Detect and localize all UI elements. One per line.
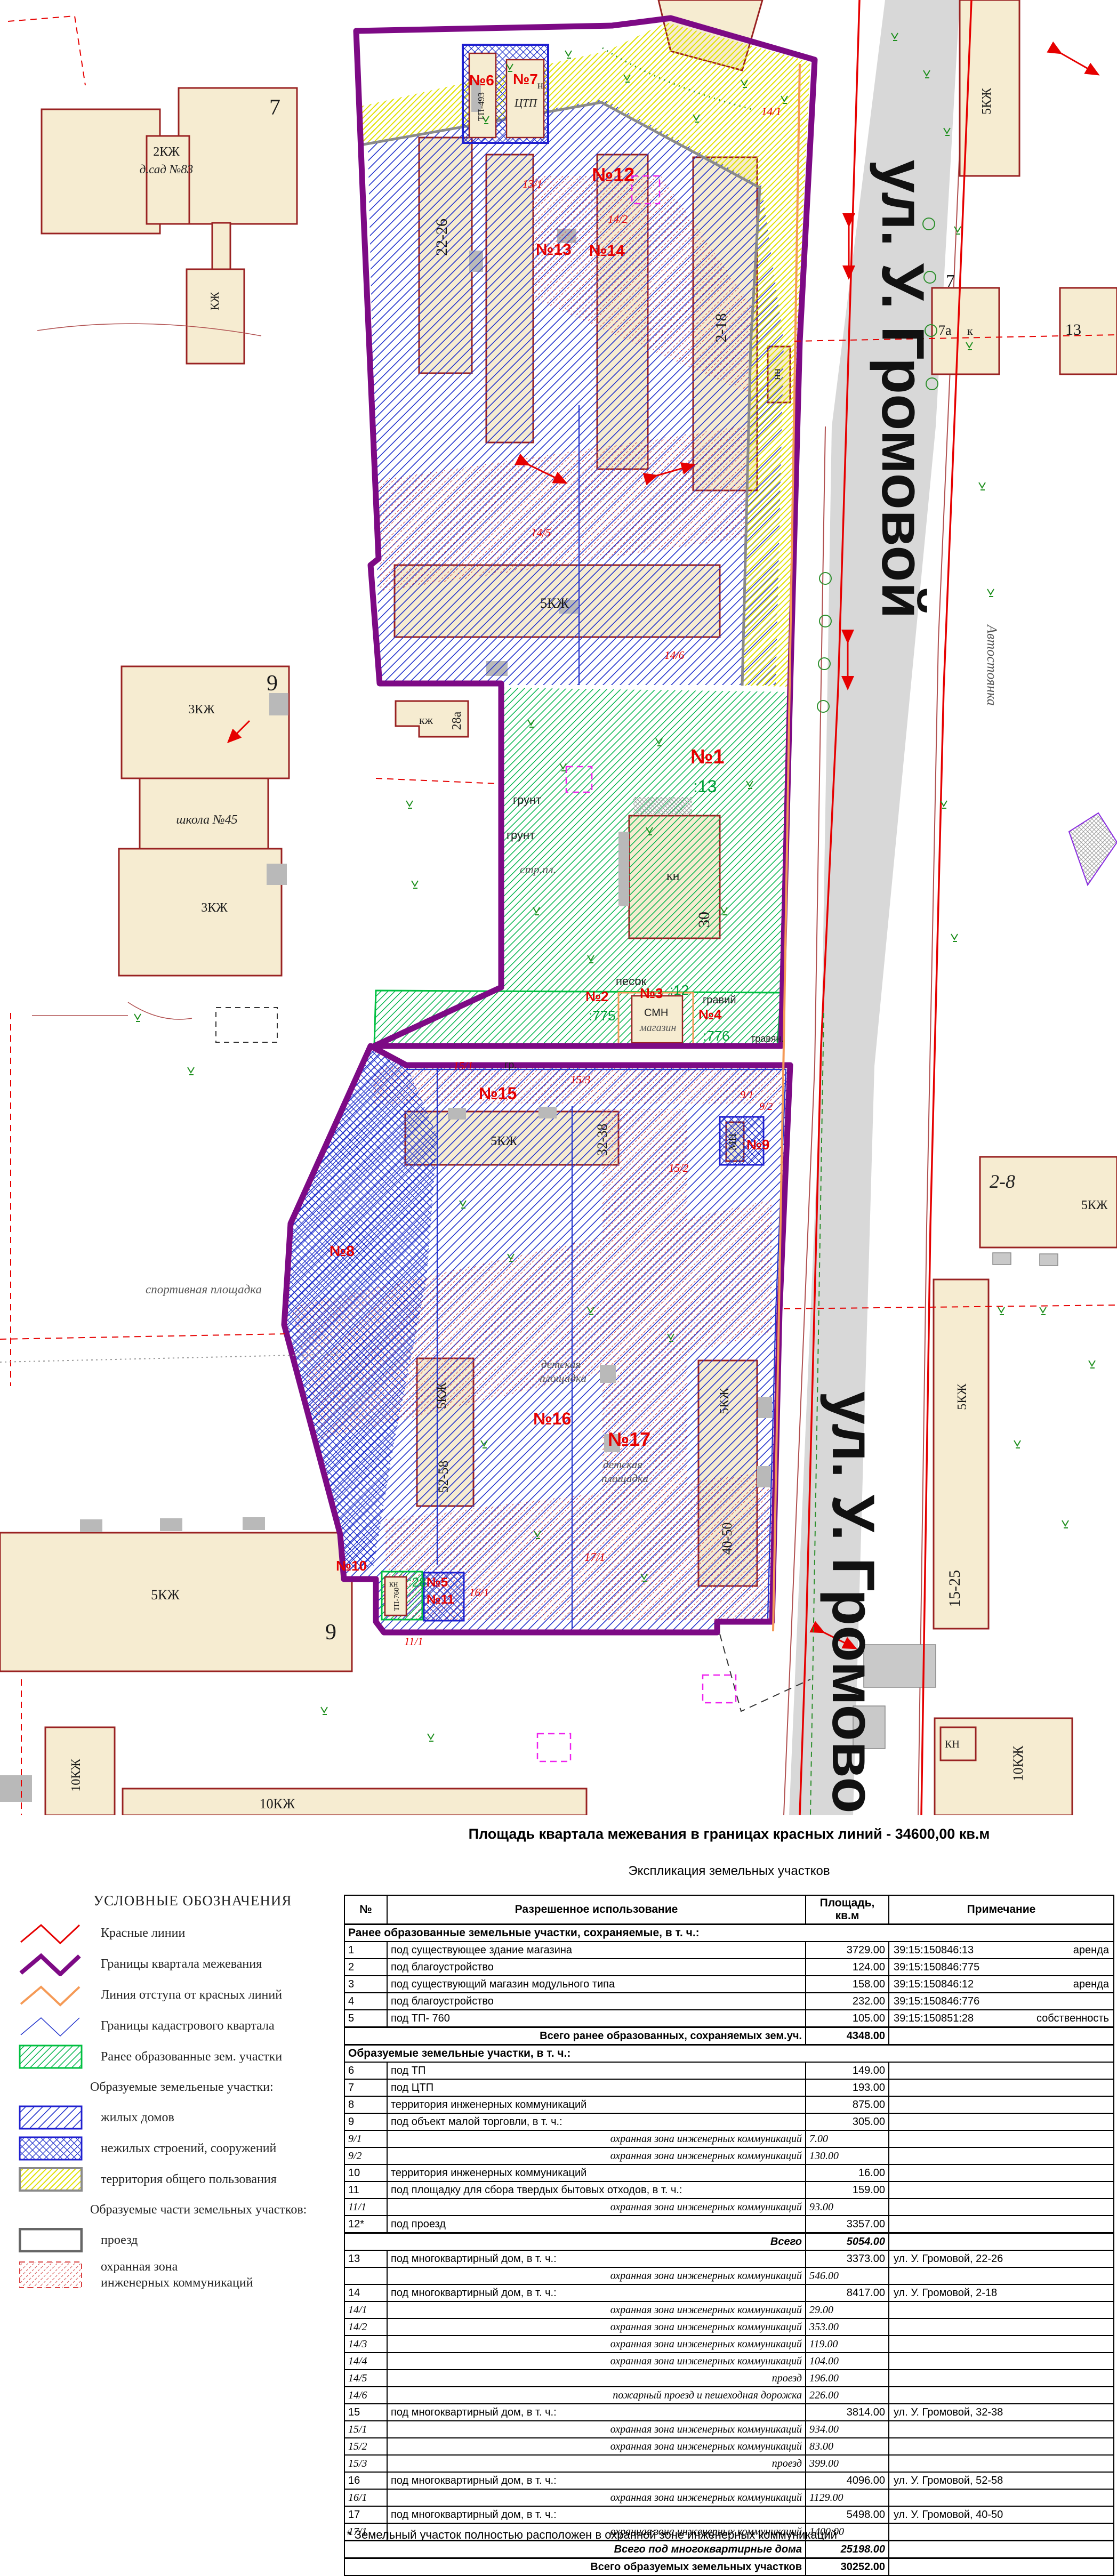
cell-notewrap	[889, 2301, 1114, 2319]
table-row: 14под многоквартирный дом, в т. ч.:8417.…	[344, 2284, 1114, 2301]
blue-crosshatch-icon	[19, 2136, 83, 2161]
table-row: 14/5проезд196.00	[344, 2370, 1114, 2387]
cell-notewrap: ул. У. Громовой, 2-18	[889, 2284, 1114, 2301]
cell-notewrap	[889, 2455, 1114, 2472]
sub-13-1: 13/1	[523, 178, 542, 190]
cell-notewrap	[889, 2336, 1114, 2353]
legend-item-red-lines: Красные линии	[19, 1921, 347, 1945]
cell-area: 5498.00	[806, 2506, 889, 2523]
legend-item-setback: Линия отступа от красных линий	[19, 1983, 347, 2007]
note-content: 39:15:150846:776	[889, 1994, 1113, 2009]
yellow-hatch-icon	[19, 2167, 83, 2192]
white-rect-icon	[19, 2228, 83, 2252]
cell-use: под ТП	[387, 2062, 806, 2079]
bld-7a: 7а	[938, 323, 952, 338]
cell-use: охранная зона инженерных коммуникаций	[387, 2319, 806, 2336]
bld-5kzh-3238: 5КЖ	[491, 1134, 517, 1148]
note-content	[889, 2189, 1113, 2191]
table-row: 4под благоустройство232.0039:15:150846:7…	[344, 1993, 1114, 2010]
table-row: 14/2охранная зона инженерных коммуникаци…	[344, 2319, 1114, 2336]
det2b: площадка	[601, 1472, 648, 1485]
cell-num: 5	[344, 2010, 387, 2027]
cell-area: 25198.00	[806, 2541, 889, 2558]
sub-14-1: 14/1	[761, 105, 781, 118]
bld-10kzh-se: 10КЖ	[1010, 1745, 1026, 1781]
cell-use: охранная зона инженерных коммуникаций	[387, 2438, 806, 2455]
cell-area: 4096.00	[806, 2472, 889, 2489]
table-row: 15/1охранная зона инженерных коммуникаци…	[344, 2421, 1114, 2438]
cell-notewrap	[889, 2233, 1114, 2251]
parcel-9-label: №9	[746, 1137, 769, 1153]
cell-num: 16/1	[344, 2489, 387, 2506]
cell-use2: Всего ранее образованных, сохраняемых зе…	[344, 2027, 806, 2045]
cell-notewrap	[889, 2267, 1114, 2284]
bld-mn: МН	[727, 1133, 738, 1150]
cad-12: :12	[670, 982, 689, 998]
cell-sec: Ранее образованные земельные участки, со…	[344, 1925, 1114, 1942]
legend-header-formed: Образуемые земельеные участки:	[19, 2075, 347, 2099]
cell-notewrap	[889, 2113, 1114, 2130]
grunt-2: грунт	[507, 828, 535, 842]
sub-14-6: 14/6	[664, 649, 685, 662]
cell-notewrap	[889, 2523, 1114, 2541]
cell-use: под площадку для сбора твердых бытовых о…	[387, 2181, 806, 2199]
cell-notewrap: 39:15:150846:775	[889, 1959, 1114, 1976]
table-row: Всего5054.00	[344, 2233, 1114, 2251]
table-row: 14/4охранная зона инженерных коммуникаци…	[344, 2353, 1114, 2370]
bld-5kzh-5258: 5КЖ	[435, 1382, 449, 1409]
cell-area: 119.00	[806, 2336, 889, 2353]
cell-num: 12*	[344, 2216, 387, 2233]
cell-area: 93.00	[806, 2199, 889, 2216]
note-content	[889, 2377, 1113, 2379]
cell-area: 105.00	[806, 2010, 889, 2027]
note-content	[889, 2462, 1113, 2465]
cell-num: 15	[344, 2404, 387, 2421]
legend-label: Границы квартала межевания	[101, 1956, 262, 1972]
note-content	[889, 2531, 1113, 2533]
cell-num: 9/2	[344, 2147, 387, 2164]
table-row: охранная зона инженерных коммуникаций546…	[344, 2267, 1114, 2284]
cell-num: 14/6	[344, 2387, 387, 2404]
cell-num: 4	[344, 1993, 387, 2010]
parcel-12-label: №12	[592, 164, 634, 186]
table-row: 7под ЦТП193.00	[344, 2079, 1114, 2096]
note-content	[889, 2326, 1113, 2328]
gr-label: гр.	[504, 1059, 517, 1071]
legend-label: Красные линии	[101, 1925, 185, 1941]
magazin-label: магазин	[639, 1022, 676, 1034]
note-content	[889, 2104, 1113, 2106]
col-num: №	[344, 1895, 387, 1925]
bld-22-26: 22-26	[433, 219, 451, 256]
cell-notewrap	[889, 2199, 1114, 2216]
legend-label: территория общего пользования	[101, 2171, 277, 2187]
cell-num: 1	[344, 1942, 387, 1959]
note-content	[889, 2206, 1113, 2208]
cell-notewrap	[889, 2147, 1114, 2164]
blue-hatch-icon	[19, 2105, 83, 2130]
cell-area: 226.00	[806, 2387, 889, 2404]
legend-item-nonresidential: нежилых строений, сооружений	[19, 2136, 347, 2161]
note-content: ул. У. Громовой, 2-18	[889, 2286, 1113, 2300]
travyan-label: травян.	[751, 1033, 784, 1044]
bld-k: к	[967, 324, 973, 337]
cell-num: 14/4	[344, 2353, 387, 2370]
cell-use: охранная зона инженерных коммуникаций	[387, 2353, 806, 2370]
det2a: площадка	[540, 1372, 586, 1384]
cell-area: 3814.00	[806, 2404, 889, 2421]
bld-kn-30: кн	[666, 869, 680, 883]
sub-16-1: 16/1	[469, 1586, 489, 1599]
explication-subtitle: Экспликация земельных участков	[344, 1864, 1114, 1879]
parcel-14-label: №14	[589, 242, 625, 260]
cell-use: охранная зона инженерных коммуникаций	[387, 2301, 806, 2319]
legend-label: Ранее образованные зем. участки	[101, 2049, 282, 2065]
bld-28a: 28а	[450, 711, 464, 730]
legend-label: Образуемые земельеные участки:	[90, 2079, 274, 2095]
cell-num: 7	[344, 2079, 387, 2096]
cell-notewrap	[889, 2096, 1114, 2113]
note-content	[889, 2343, 1113, 2345]
bld-13: 13	[1065, 321, 1081, 339]
green-hatch-icon	[19, 2044, 83, 2069]
cell-area: 30252.00	[806, 2558, 889, 2576]
table-row: 15/3проезд399.00	[344, 2455, 1114, 2472]
cell-notewrap	[889, 2216, 1114, 2233]
block7-label: 7	[269, 95, 280, 120]
cell-notewrap	[889, 2387, 1114, 2404]
bld-2-18: 2-18	[712, 313, 730, 343]
parcel-7-label: №7	[513, 71, 538, 87]
parcel-11-label: №11	[427, 1592, 454, 1607]
cell-use: территория инженерных коммуникаций	[387, 2164, 806, 2181]
parcel-16-label: №16	[533, 1409, 571, 1428]
graviy-label: гравий	[703, 994, 736, 1006]
red-hatch-icon	[19, 2261, 83, 2289]
table-row: 14/6пожарный проезд и пешеходная дорожка…	[344, 2387, 1114, 2404]
note-content: ул. У. Громовой, 40-50	[889, 2508, 1113, 2522]
col-area: Площадь, кв.м	[806, 1895, 889, 1925]
cell-area: 16.00	[806, 2164, 889, 2181]
cell-notewrap	[889, 2027, 1114, 2045]
table-row: 9под объект малой торговли, в т. ч.:305.…	[344, 2113, 1114, 2130]
parcel-4-label: №4	[698, 1007, 722, 1023]
table-row: 5под ТП- 760105.0039:15:150851:28собстве…	[344, 2010, 1114, 2027]
table-row: 10территория инженерных коммуникаций16.0…	[344, 2164, 1114, 2181]
cad-775: :775	[589, 1008, 616, 1024]
cell-num: 6	[344, 2062, 387, 2079]
cell-num: 14/5	[344, 2370, 387, 2387]
note-content	[889, 2087, 1113, 2089]
lower-quarter	[284, 1046, 790, 1632]
parcel-2-label: №2	[585, 988, 608, 1004]
table-row: 11/1охранная зона инженерных коммуникаци…	[344, 2199, 1114, 2216]
col-use: Разрешенное использование	[387, 1895, 806, 1925]
cell-num: 15/3	[344, 2455, 387, 2472]
sub-11-1: 11/1	[404, 1635, 423, 1648]
cell-use: охранная зона инженерных коммуникаций	[387, 2147, 806, 2164]
cell-notewrap	[889, 2541, 1114, 2558]
cell-use: охранная зона инженерных коммуникаций	[387, 2421, 806, 2438]
bld-kn-tp: кн	[389, 1580, 398, 1589]
table-row: 16/1охранная зона инженерных коммуникаци…	[344, 2489, 1114, 2506]
cell-use2: Всего образуемых земельных участков	[344, 2558, 806, 2576]
cell-num: 14/1	[344, 2301, 387, 2319]
page: { "map": { "labels": { "street": "ул. У.…	[0, 0, 1117, 2570]
note-content	[889, 2138, 1113, 2140]
bld-kzh-wing: КЖ	[208, 292, 221, 311]
sub-15-1: 15/1	[453, 1059, 473, 1072]
table-row: 3под существующий магазин модульного тип…	[344, 1976, 1114, 1993]
table-row: 13под многоквартирный дом, в т. ч.:3373.…	[344, 2250, 1114, 2267]
cell-area: 149.00	[806, 2062, 889, 2079]
note-content	[889, 2360, 1113, 2362]
note-content	[889, 2121, 1113, 2123]
cell-area: 305.00	[806, 2113, 889, 2130]
note-content: ул. У. Громовой, 22-26	[889, 2252, 1113, 2266]
cell-num: 15/2	[344, 2438, 387, 2455]
sub-14-2: 14/2	[608, 213, 628, 226]
cell-num: 2	[344, 1959, 387, 1976]
cell-use: под многоквартирный дом, в т. ч.:	[387, 2506, 806, 2523]
table-row: Образуемые земельные участки, в т. ч.:	[344, 2045, 1114, 2063]
cell-area: 5054.00	[806, 2233, 889, 2251]
cell-use: под объект малой торговли, в т. ч.:	[387, 2113, 806, 2130]
cell-num: 17	[344, 2506, 387, 2523]
block9-west: 9	[325, 1620, 336, 1645]
cell-area: 8417.00	[806, 2284, 889, 2301]
parcel-17-label: №17	[608, 1428, 650, 1450]
cell-num: 8	[344, 2096, 387, 2113]
note-content	[889, 2497, 1113, 2499]
expl-table-body: Ранее образованные земельные участки, со…	[344, 1925, 1114, 2576]
cell-use: охранная зона инженерных коммуникаций	[387, 2267, 806, 2284]
cell-area: 196.00	[806, 2370, 889, 2387]
parcel-6-label: №6	[469, 72, 494, 88]
cell-use: под благоустройство	[387, 1993, 806, 2010]
grunt-1: грунт	[513, 793, 541, 807]
cell-notewrap	[889, 2438, 1114, 2455]
cell-use: охранная зона инженерных коммуникаций	[387, 2336, 806, 2353]
cell-notewrap: ул. У. Громовой, 22-26	[889, 2250, 1114, 2267]
note-content	[889, 2394, 1113, 2396]
legend-header-parts: Образуемые части земельных участков:	[19, 2198, 347, 2221]
parcel-3-label: №3	[640, 985, 663, 1001]
bld-nn-band: нн	[771, 368, 783, 380]
parcel-10-label: №10	[336, 1558, 367, 1574]
cell-notewrap: ул. У. Громовой, 32-38	[889, 2404, 1114, 2421]
table-row: Всего образуемых земельных участков30252…	[344, 2558, 1114, 2576]
table-row: 14/3охранная зона инженерных коммуникаци…	[344, 2336, 1114, 2353]
cell-num	[344, 2267, 387, 2284]
note-content	[889, 2309, 1113, 2311]
table-row: 15под многоквартирный дом, в т. ч.:3814.…	[344, 2404, 1114, 2421]
note-content	[889, 2428, 1113, 2430]
cell-area: 3729.00	[806, 1942, 889, 1959]
cell-area: 546.00	[806, 2267, 889, 2284]
cell-num: 9	[344, 2113, 387, 2130]
cell-notewrap	[889, 2062, 1114, 2079]
cell-use2: Всего	[344, 2233, 806, 2251]
note-content	[889, 2172, 1113, 2174]
note-content: ул. У. Громовой, 32-38	[889, 2405, 1113, 2420]
parcel-15-label: №15	[479, 1084, 517, 1103]
cell-area: 4348.00	[806, 2027, 889, 2045]
parcel-5-label: №5	[427, 1575, 448, 1590]
legend-title: УСЛОВНЫЕ ОБОЗНАЧЕНИЯ	[93, 1893, 347, 1909]
ctp-label: ЦТП	[514, 96, 538, 109]
purple-zigzag-icon	[19, 1952, 83, 1976]
note-content: 39:15:150846:13аренда	[889, 1943, 1113, 1958]
table-row: 2под благоустройство124.0039:15:150846:7…	[344, 1959, 1114, 1976]
block-6-7	[463, 45, 548, 143]
bld-2kzh: 2КЖ	[153, 145, 180, 159]
note-content	[889, 2275, 1113, 2277]
cell-num: 16	[344, 2472, 387, 2489]
bld-5kzh-ne: 5КЖ	[980, 88, 994, 115]
tp760-label: ТП-760	[393, 1588, 401, 1611]
cell-use: под ЦТП	[387, 2079, 806, 2096]
cell-notewrap	[889, 2489, 1114, 2506]
cell-area: 353.00	[806, 2319, 889, 2336]
cell-notewrap	[889, 2558, 1114, 2576]
cell-use: под многоквартирный дом, в т. ч.:	[387, 2472, 806, 2489]
bld-52-58: 52-58	[436, 1461, 451, 1493]
cell-area: 232.00	[806, 1993, 889, 2010]
cell-area: 159.00	[806, 2181, 889, 2199]
bld-n-label: н	[537, 79, 543, 91]
cell-notewrap: ул. У. Громовой, 52-58	[889, 2472, 1114, 2489]
sub-9-2: 9/2	[759, 1101, 773, 1113]
cell-use: под многоквартирный дом, в т. ч.:	[387, 2404, 806, 2421]
cell-notewrap: ул. У. Громовой, 40-50	[889, 2506, 1114, 2523]
legend-item-cadastral-boundary: Границы кадастрового квартала	[19, 2014, 347, 2038]
legend-label: Границы кадастрового квартала	[101, 2018, 275, 2034]
cell-use: под проезд	[387, 2216, 806, 2233]
cell-use: под многоквартирный дом, в т. ч.:	[387, 2250, 806, 2267]
table-row: 8территория инженерных коммуникаций875.0…	[344, 2096, 1114, 2113]
legend-label: проезд	[101, 2232, 138, 2248]
cell-notewrap	[889, 2130, 1114, 2147]
col-note: Примечание	[889, 1895, 1114, 1925]
tp493-label: ТП-493	[476, 92, 486, 121]
cell-area: 3373.00	[806, 2250, 889, 2267]
sub-14-5: 14/5	[531, 526, 551, 539]
sport-label: спортивная площадка	[146, 1283, 262, 1296]
cell-use: пожарный проезд и пешеходная дорожка	[387, 2387, 806, 2404]
cell-area: 399.00	[806, 2455, 889, 2472]
note-content	[889, 2445, 1113, 2448]
bld-5kzh-28: 5КЖ	[1081, 1198, 1108, 1212]
cell-num: 3	[344, 1976, 387, 1993]
legend-item-prior-parcels: Ранее образованные зем. участки	[19, 2044, 347, 2069]
bld-30: 30	[695, 912, 713, 928]
bld-2-8: 2-8	[990, 1171, 1015, 1192]
strpl-label: стр.пл.	[520, 863, 556, 876]
cell-area: 124.00	[806, 1959, 889, 1976]
parcel-13-label: №13	[536, 241, 572, 259]
block9-label: 9	[267, 671, 278, 696]
sub-9-1: 9/1	[740, 1089, 754, 1101]
sub-17-1: 17/1	[584, 1550, 605, 1564]
street-label-2: ул. У. Громовой	[820, 1391, 887, 1815]
table-row: Ранее образованные земельные участки, со…	[344, 1925, 1114, 1942]
bld-3kzh-2: 3КЖ	[201, 901, 228, 915]
cad-13: :13	[693, 777, 717, 796]
cell-num: 9/1	[344, 2130, 387, 2147]
cell-notewrap: 39:15:150851:28собственность	[889, 2010, 1114, 2027]
footnote: * Земельный участок полностью расположен…	[347, 2528, 837, 2542]
table-row: 9/1охранная зона инженерных коммуникаций…	[344, 2130, 1114, 2147]
table-row: Всего ранее образованных, сохраняемых зе…	[344, 2027, 1114, 2045]
cell-num: 13	[344, 2250, 387, 2267]
cell-num: 11/1	[344, 2199, 387, 2216]
note-content: 39:15:150846:12аренда	[889, 1977, 1113, 1992]
cell-notewrap: 39:15:150846:12аренда	[889, 1976, 1114, 1993]
cell-use: территория инженерных коммуникаций	[387, 2096, 806, 2113]
table-row: 15/2охранная зона инженерных коммуникаци…	[344, 2438, 1114, 2455]
legend-item-residential: жилых домов	[19, 2105, 347, 2130]
cad-776: :776	[703, 1028, 730, 1044]
cell-use: охранная зона инженерных коммуникаций	[387, 2489, 806, 2506]
cell-use: под благоустройство	[387, 1959, 806, 1976]
block7-east: 7	[946, 271, 955, 291]
legend-item-driveway: проезд	[19, 2228, 347, 2252]
cell-use: под ТП- 760	[387, 2010, 806, 2027]
map-svg: ул. У. Громовой ул. У. Громовой №6 №7 н …	[0, 0, 1117, 1815]
cell-num: 14	[344, 2284, 387, 2301]
det1b: детская	[603, 1458, 642, 1471]
sub-15-2: 15/2	[669, 1162, 689, 1174]
table-header-row: № Разрешенное использование Площадь, кв.…	[344, 1895, 1114, 1925]
cell-notewrap	[889, 2181, 1114, 2199]
cell-area: 875.00	[806, 2096, 889, 2113]
smn-label: СМН	[644, 1007, 668, 1019]
cell-area: 104.00	[806, 2353, 889, 2370]
bld-15-25: 15-25	[946, 1570, 963, 1607]
bld-10kzh-v: 10КЖ	[69, 1759, 83, 1792]
table-row: 14/1охранная зона инженерных коммуникаци…	[344, 2301, 1114, 2319]
cell-notewrap	[889, 2164, 1114, 2181]
cell-notewrap: 39:15:150846:13аренда	[889, 1942, 1114, 1959]
legend: УСЛОВНЫЕ ОБОЗНАЧЕНИЯ Красные линии Грани…	[19, 1893, 347, 2297]
note-content	[889, 2223, 1113, 2225]
cell-use: охранная зона инженерных коммуникаций	[387, 2130, 806, 2147]
cell-use: под существующий магазин модульного типа	[387, 1976, 806, 1993]
bld-5kzh-west: 5КЖ	[151, 1587, 180, 1603]
school-label: школа №45	[176, 813, 237, 827]
cell-notewrap	[889, 2370, 1114, 2387]
table-row: Всего под многоквартирные дома25198.00	[344, 2541, 1114, 2558]
bld-10kzh-h: 10КЖ	[260, 1796, 295, 1812]
cell-use2: Всего под многоквартирные дома	[344, 2541, 806, 2558]
legend-label: жилых домов	[101, 2110, 174, 2126]
legend-item-protection-zone: охранная зонаинженерных коммуникаций	[19, 2259, 347, 2291]
bld-5kzh-upper: 5КЖ	[540, 595, 569, 611]
legend-item-common-territory: территория общего пользования	[19, 2167, 347, 2192]
cell-area: 193.00	[806, 2079, 889, 2096]
cadastral-map: ул. У. Громовой ул. У. Громовой №6 №7 н …	[0, 0, 1117, 1818]
cell-num: 15/1	[344, 2421, 387, 2438]
table-row: 9/2охранная зона инженерных коммуникаций…	[344, 2147, 1114, 2164]
table-row: 1под существующее здание магазина3729.00…	[344, 1942, 1114, 1959]
cell-area: 29.00	[806, 2301, 889, 2319]
table-row: 17под многоквартирный дом, в т. ч.:5498.…	[344, 2506, 1114, 2523]
cell-area: 7.00	[806, 2130, 889, 2147]
cell-use: под многоквартирный дом, в т. ч.:	[387, 2284, 806, 2301]
note-content: 39:15:150846:775	[889, 1960, 1113, 1975]
